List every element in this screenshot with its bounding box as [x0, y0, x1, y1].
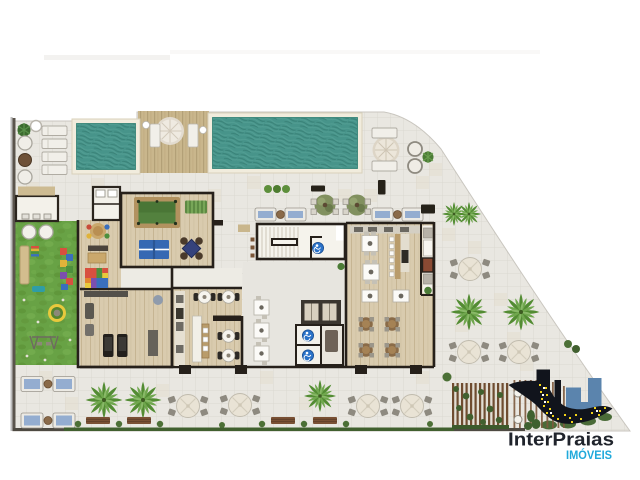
svg-text:InterPraias: InterPraias — [508, 430, 614, 450]
svg-text:IMÓVEIS: IMÓVEIS — [566, 449, 612, 462]
